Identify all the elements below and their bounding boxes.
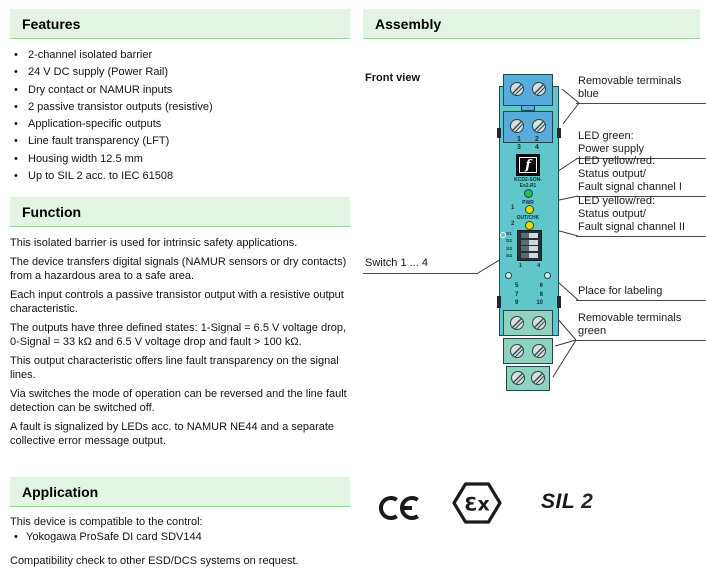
- mounting-clip: [497, 296, 501, 308]
- feature-item: •Housing width 12.5 mm: [14, 151, 350, 168]
- callout-line: Place for labeling: [578, 285, 706, 298]
- bullet-icon: •: [14, 47, 28, 64]
- callout-line: Fault signal channel I: [578, 181, 706, 194]
- feature-text: Application-specific outputs: [28, 116, 161, 133]
- callout-line: Status output/: [578, 168, 706, 181]
- bullet-icon: •: [14, 64, 28, 81]
- function-body: This isolated barrier is used for intrin…: [10, 236, 350, 448]
- dip-number: 1: [519, 263, 522, 269]
- channel-2-led: [525, 221, 534, 230]
- function-paragraph: This isolated barrier is used for intrin…: [10, 236, 350, 250]
- callout-removable-terminals-blue: Removable terminals blue: [576, 75, 706, 104]
- terminal-screw-icon: [530, 370, 546, 386]
- bullet-icon: •: [14, 168, 28, 185]
- bullet-icon: •: [14, 82, 28, 99]
- ex-mark-icon: Ɛx: [451, 480, 503, 526]
- application-header: Application: [10, 477, 350, 507]
- green-terminal-block-3: [506, 366, 550, 391]
- certification-marks: CE Ɛx SIL 2: [363, 478, 706, 548]
- terminal-number: 4: [535, 144, 539, 152]
- switch-label: S4: [506, 253, 512, 260]
- feature-text: Up to SIL 2 acc. to IEC 61508: [28, 168, 173, 185]
- brand-logo-glyph: f: [519, 157, 537, 173]
- channel-2-number: 2: [511, 221, 514, 227]
- callout-line: LED yellow/red:: [578, 155, 706, 168]
- application-note: Compatibility check to other ESD/DCS sys…: [10, 554, 350, 569]
- switch-labels: S1 S2 S3 S4: [506, 231, 512, 261]
- terminal-screw-icon: [531, 315, 547, 331]
- ex-mark-text: Ɛx: [464, 494, 489, 516]
- application-item: •Yokogawa ProSafe DI card SDV144: [10, 530, 350, 545]
- terminal-screw-icon: [510, 370, 526, 386]
- bullet-icon: •: [14, 116, 28, 133]
- dip-range-numbers: 1 4: [517, 263, 542, 269]
- callout-switch-1-4: Switch 1 ... 4: [363, 257, 478, 274]
- callout-line: Status output/: [578, 208, 706, 221]
- features-list: •2-channel isolated barrier •24 V DC sup…: [10, 47, 350, 185]
- ce-mark-icon: [377, 494, 421, 522]
- device-front-view: 12 34 f KCD2-SON- Ex2.R1 PWR 1 OUT/CHK 2…: [498, 74, 560, 392]
- dip-switch: [521, 246, 538, 251]
- brand-logo: f: [516, 154, 540, 176]
- function-paragraph: The outputs have three defined states: 1…: [10, 321, 350, 349]
- feature-text: Housing width 12.5 mm: [28, 151, 143, 168]
- dip-switch: [521, 233, 538, 238]
- datasheet-page: Features •2-channel isolated barrier •24…: [0, 0, 706, 581]
- application-body: This device is compatible to the control…: [10, 515, 350, 569]
- terminal-screw-icon: [509, 81, 525, 97]
- mounting-clip: [497, 128, 501, 138]
- feature-text: Dry contact or NAMUR inputs: [28, 82, 172, 99]
- terminal-screw-icon: [509, 118, 525, 134]
- dip-switch-block: [517, 230, 542, 261]
- callout-removable-terminals-green: Removable terminals green: [576, 312, 706, 341]
- switch-label: S3: [506, 246, 512, 253]
- mid-terminal-numbers: 56 78 910: [510, 282, 548, 308]
- dip-switch: [521, 240, 538, 245]
- terminal-number: 3: [517, 144, 521, 152]
- bullet-icon: •: [14, 151, 28, 168]
- application-item-text: Yokogawa ProSafe DI card SDV144: [26, 530, 202, 545]
- channel-1-number: 1: [511, 205, 514, 211]
- switch-label: S1: [506, 231, 512, 238]
- callout-line: blue: [578, 88, 706, 101]
- terminal-number: 5: [515, 282, 518, 291]
- mounting-clip: [557, 296, 561, 308]
- callout-led-channel-1: LED yellow/red: Status output/ Fault sig…: [576, 155, 706, 197]
- sil-text: SIL: [541, 490, 575, 513]
- terminal-number: 6: [540, 282, 543, 291]
- terminal-number: 9: [515, 299, 518, 308]
- ce-mark-label: CE: [363, 478, 364, 479]
- feature-item: •Line fault transparency (LFT): [14, 133, 350, 150]
- terminal-screw-icon: [531, 343, 547, 359]
- function-paragraph: Each input controls a passive transistor…: [10, 288, 350, 316]
- terminal-number: 2: [535, 136, 539, 144]
- callout-line: Removable terminals: [578, 75, 706, 88]
- function-paragraph: Via switches the mode of operation can b…: [10, 387, 350, 415]
- callout-led-channel-2: LED yellow/red: Status output/ Fault sig…: [576, 195, 706, 237]
- terminal-screw-icon: [531, 118, 547, 134]
- application-section: Application This device is compatible to…: [10, 477, 350, 569]
- green-terminal-block-2: [503, 338, 553, 364]
- bullet-icon: •: [14, 133, 28, 150]
- feature-item: •24 V DC supply (Power Rail): [14, 64, 350, 81]
- power-led: [524, 189, 533, 198]
- top-terminal-numbers: 12 34: [510, 136, 546, 152]
- feature-text: 2 passive transistor outputs (resistive): [28, 99, 213, 116]
- bullet-icon: •: [14, 530, 26, 545]
- callout-line: Fault signal channel II: [578, 221, 706, 234]
- switch-label: S2: [506, 238, 512, 245]
- callout-line: LED yellow/red:: [578, 195, 706, 208]
- features-section: Features •2-channel isolated barrier •24…: [10, 9, 350, 185]
- callout-line: green: [578, 325, 706, 338]
- callout-line: LED green:: [578, 130, 706, 143]
- feature-item: •Application-specific outputs: [14, 116, 350, 133]
- feature-text: Line fault transparency (LFT): [28, 133, 169, 150]
- feature-text: 24 V DC supply (Power Rail): [28, 64, 168, 81]
- assembly-figure: Front view: [363, 44, 706, 474]
- terminal-number: 7: [515, 291, 518, 300]
- application-intro: This device is compatible to the control…: [10, 515, 350, 530]
- terminal-number: 8: [540, 291, 543, 300]
- label-panel-hole: [505, 272, 512, 279]
- terminal-number: 1: [517, 136, 521, 144]
- dip-number: 4: [537, 263, 540, 269]
- label-panel-hole: [544, 272, 551, 279]
- device-model-text: KCD2-SON- Ex2.R1: [500, 178, 556, 189]
- terminal-screw-icon: [509, 315, 525, 331]
- channel-1-led: [525, 205, 534, 214]
- terminal-screw-icon: [531, 81, 547, 97]
- function-header: Function: [10, 197, 350, 227]
- terminal-screw-icon: [509, 343, 525, 359]
- bullet-icon: •: [14, 99, 28, 116]
- feature-item: •2 passive transistor outputs (resistive…: [14, 99, 350, 116]
- sil-level: 2: [581, 490, 593, 513]
- feature-text: 2-channel isolated barrier: [28, 47, 152, 64]
- callout-line: Removable terminals: [578, 312, 706, 325]
- sil2-mark: SIL 2: [541, 490, 593, 514]
- function-section: Function This isolated barrier is used f…: [10, 197, 350, 453]
- green-terminal-block-1: [503, 310, 553, 336]
- assembly-header: Assembly: [363, 9, 700, 39]
- features-header: Features: [10, 9, 350, 39]
- dip-switch: [521, 253, 538, 258]
- terminal-number: 10: [536, 299, 543, 308]
- function-paragraph: A fault is signalized by LEDs acc. to NA…: [10, 420, 350, 448]
- feature-item: •Up to SIL 2 acc. to IEC 61508: [14, 168, 350, 185]
- function-paragraph: The device transfers digital signals (NA…: [10, 255, 350, 283]
- mounting-clip: [557, 128, 561, 138]
- feature-item: •Dry contact or NAMUR inputs: [14, 82, 350, 99]
- blue-terminal-block-1: [503, 74, 553, 106]
- feature-item: •2-channel isolated barrier: [14, 47, 350, 64]
- function-paragraph: This output characteristic offers line f…: [10, 354, 350, 382]
- callout-place-for-labeling: Place for labeling: [576, 285, 706, 301]
